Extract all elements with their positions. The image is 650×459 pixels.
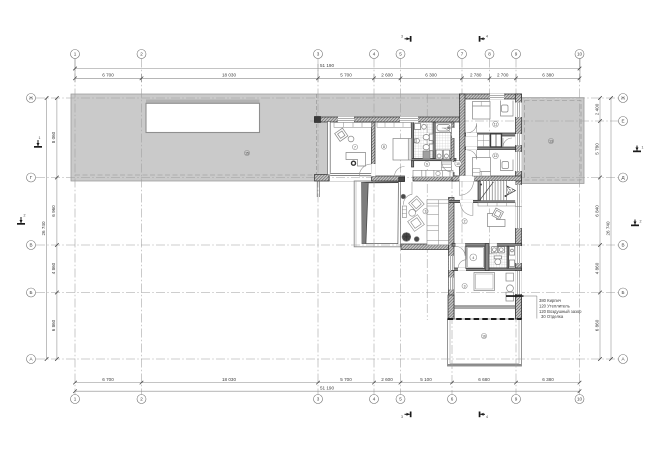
svg-text:1: 1: [74, 397, 77, 402]
svg-text:В: В: [29, 243, 32, 248]
svg-text:6 680: 6 680: [478, 377, 490, 382]
svg-text:5: 5: [399, 397, 402, 402]
svg-text:3: 3: [317, 52, 320, 57]
svg-text:30 Отделка: 30 Отделка: [541, 314, 564, 319]
svg-text:8: 8: [383, 145, 385, 149]
svg-text:10: 10: [577, 397, 583, 402]
svg-text:18 030: 18 030: [222, 377, 236, 382]
svg-text:1: 1: [74, 52, 77, 57]
svg-text:16: 16: [482, 334, 486, 338]
svg-text:5 700: 5 700: [340, 73, 352, 78]
svg-text:26 740: 26 740: [605, 221, 610, 235]
svg-text:26 740: 26 740: [41, 221, 46, 235]
svg-text:7: 7: [461, 52, 464, 57]
svg-text:Б: Б: [29, 290, 32, 295]
svg-text:1: 1: [425, 210, 427, 214]
svg-text:9: 9: [515, 397, 518, 402]
svg-text:2 700: 2 700: [497, 73, 509, 78]
svg-text:120 Утеплитель: 120 Утеплитель: [539, 303, 571, 308]
svg-text:4: 4: [472, 256, 474, 260]
svg-text:4: 4: [486, 415, 488, 419]
svg-text:3: 3: [401, 415, 403, 419]
svg-text:9: 9: [515, 52, 518, 57]
svg-text:6 840: 6 840: [594, 205, 599, 217]
svg-text:4 860: 4 860: [594, 262, 599, 274]
svg-text:Б: Б: [621, 290, 624, 295]
svg-text:51 190: 51 190: [320, 386, 334, 391]
svg-text:2: 2: [140, 397, 143, 402]
svg-text:3: 3: [401, 35, 403, 39]
svg-text:6 300: 6 300: [425, 73, 437, 78]
svg-text:8: 8: [488, 52, 491, 57]
svg-text:15: 15: [245, 151, 249, 155]
svg-text:3: 3: [464, 284, 466, 288]
svg-text:6 960: 6 960: [51, 205, 56, 217]
svg-text:2 780: 2 780: [470, 73, 482, 78]
svg-text:6 860: 6 860: [51, 319, 56, 331]
svg-text:2 600: 2 600: [381, 377, 393, 382]
svg-text:7: 7: [354, 145, 356, 149]
svg-text:11: 11: [494, 123, 498, 127]
svg-text:2 600: 2 600: [381, 73, 393, 78]
svg-text:2: 2: [24, 214, 26, 218]
svg-text:В: В: [621, 243, 624, 248]
svg-text:4: 4: [486, 35, 488, 39]
svg-text:4: 4: [373, 52, 376, 57]
svg-text:120 Воздушный зазор: 120 Воздушный зазор: [539, 309, 582, 314]
svg-text:380 Кирпич: 380 Кирпич: [539, 298, 561, 303]
svg-text:6 860: 6 860: [594, 319, 599, 331]
svg-text:6: 6: [451, 397, 454, 402]
svg-text:Е: Е: [621, 119, 624, 124]
svg-text:2 400: 2 400: [594, 103, 599, 115]
svg-text:6 700: 6 700: [102, 377, 114, 382]
svg-text:2: 2: [140, 52, 143, 57]
svg-text:10: 10: [577, 52, 583, 57]
svg-text:5 780: 5 780: [594, 143, 599, 155]
svg-text:5: 5: [399, 52, 402, 57]
svg-text:51 190: 51 190: [320, 63, 334, 68]
svg-text:6 700: 6 700: [102, 73, 114, 78]
svg-text:4: 4: [373, 397, 376, 402]
svg-text:18 030: 18 030: [222, 73, 236, 78]
svg-text:10: 10: [456, 162, 460, 166]
svg-text:3: 3: [317, 397, 320, 402]
svg-text:2: 2: [640, 220, 642, 224]
svg-text:5: 5: [509, 188, 511, 192]
svg-text:9: 9: [426, 162, 428, 166]
svg-text:6 380: 6 380: [542, 73, 554, 78]
svg-text:1: 1: [39, 136, 41, 140]
svg-text:1: 1: [642, 146, 644, 150]
svg-text:4 860: 4 860: [51, 262, 56, 274]
svg-text:2: 2: [464, 220, 466, 224]
svg-text:6 380: 6 380: [542, 377, 554, 382]
svg-text:5 100: 5 100: [420, 377, 432, 382]
svg-text:8 060: 8 060: [51, 131, 56, 143]
svg-text:5 700: 5 700: [340, 377, 352, 382]
svg-text:13: 13: [549, 139, 553, 143]
svg-text:12: 12: [494, 154, 498, 158]
